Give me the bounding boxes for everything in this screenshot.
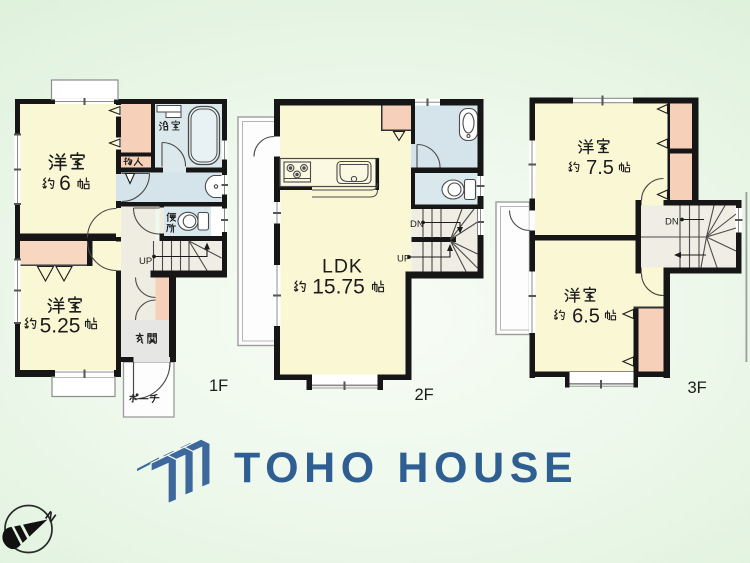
svg-text:2F: 2F [415,386,434,404]
svg-text:UP: UP [139,256,152,267]
svg-text:N: N [42,508,58,526]
svg-text:DN: DN [665,217,679,228]
svg-text:LDK: LDK [322,256,363,278]
svg-text:5.25: 5.25 [40,315,81,338]
svg-text:1F: 1F [209,377,228,395]
svg-text:DN: DN [410,219,424,230]
svg-text:3F: 3F [688,379,707,397]
svg-text:6: 6 [59,172,71,195]
svg-text:6.5: 6.5 [572,306,600,328]
svg-text:7.5: 7.5 [586,157,614,179]
svg-text:15.75: 15.75 [312,276,365,299]
svg-text:TOHO HOUSE: TOHO HOUSE [234,444,578,492]
svg-text:UP: UP [397,254,410,265]
